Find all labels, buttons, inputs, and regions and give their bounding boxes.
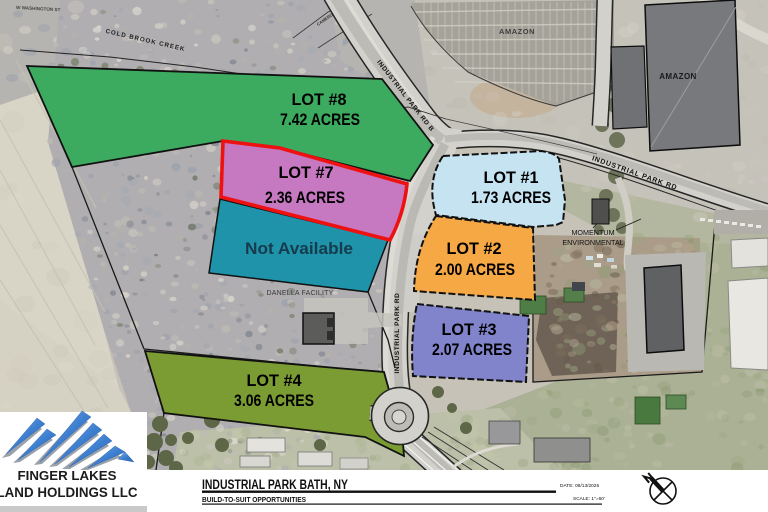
svg-text:LOT #2: LOT #2 [447, 239, 502, 258]
svg-text:LOT #8: LOT #8 [292, 90, 347, 109]
svg-text:3.06 ACRES: 3.06 ACRES [234, 391, 314, 410]
svg-text:2.00 ACRES: 2.00 ACRES [435, 260, 515, 279]
svg-text:SCALE: 1"=60': SCALE: 1"=60' [573, 496, 605, 502]
svg-text:2.07 ACRES: 2.07 ACRES [432, 340, 512, 359]
svg-text:INDUSTRIAL PARK BATH, NY: INDUSTRIAL PARK BATH, NY [202, 477, 348, 492]
svg-text:LOT #7: LOT #7 [279, 163, 334, 182]
svg-text:MOMENTUM: MOMENTUM [571, 228, 614, 237]
svg-text:LOT #3: LOT #3 [442, 320, 497, 339]
svg-text:AMAZON: AMAZON [659, 72, 697, 81]
svg-text:LOT #4: LOT #4 [247, 371, 303, 390]
svg-text:7.42 ACRES: 7.42 ACRES [280, 110, 360, 129]
svg-text:2.36 ACRES: 2.36 ACRES [265, 188, 345, 207]
svg-text:BUILD-TO-SUIT OPPORTUNITIES: BUILD-TO-SUIT OPPORTUNITIES [202, 495, 306, 504]
svg-text:DATE: 08/13/2025: DATE: 08/13/2025 [560, 483, 599, 489]
svg-text:1.73 ACRES: 1.73 ACRES [471, 188, 551, 207]
svg-text:LOT #1: LOT #1 [484, 168, 539, 187]
svg-text:AMAZON: AMAZON [499, 27, 535, 36]
svg-text:Not Available: Not Available [245, 239, 353, 258]
svg-text:ENVIRONMENTAL: ENVIRONMENTAL [562, 238, 623, 247]
svg-text:LAND HOLDINGS LLC: LAND HOLDINGS LLC [0, 484, 138, 500]
svg-text:FINGER LAKES: FINGER LAKES [18, 468, 117, 483]
svg-text:INDUSTRIAL PARK RD: INDUSTRIAL PARK RD [394, 293, 401, 374]
svg-text:DANELLA FACILITY: DANELLA FACILITY [266, 290, 333, 297]
